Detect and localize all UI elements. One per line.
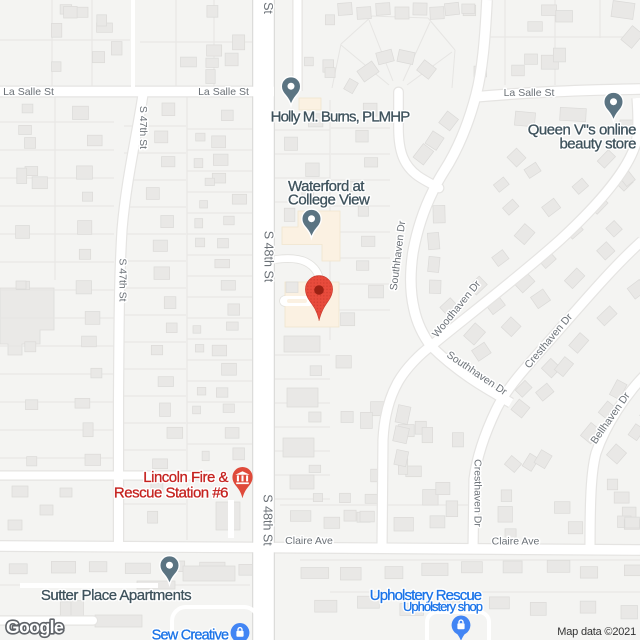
svg-text:Holly M. Burns, PLMHP: Holly M. Burns, PLMHP xyxy=(271,109,411,126)
svg-text:Claire Ave: Claire Ave xyxy=(492,536,540,548)
svg-text:Rescue Station #6: Rescue Station #6 xyxy=(114,485,228,502)
svg-text:Lincoln Fire &: Lincoln Fire & xyxy=(143,469,228,486)
svg-text:Google: Google xyxy=(6,617,64,637)
svg-text:La Salle St: La Salle St xyxy=(198,86,249,98)
svg-text:beauty store: beauty store xyxy=(559,136,636,153)
svg-text:S 47th St: S 47th St xyxy=(117,258,129,301)
svg-text:La Salle St: La Salle St xyxy=(3,86,54,98)
svg-text:Sew Creative: Sew Creative xyxy=(152,628,229,640)
svg-text:Map data ©2021: Map data ©2021 xyxy=(557,626,636,638)
svg-text:Sutter Place Apartments: Sutter Place Apartments xyxy=(41,587,191,604)
svg-text:Upholstery shop: Upholstery shop xyxy=(403,599,483,614)
svg-text:College View: College View xyxy=(288,192,370,209)
svg-text:Claire Ave: Claire Ave xyxy=(285,535,333,547)
svg-text:S 48th St: S 48th St xyxy=(262,231,276,283)
svg-text:S 48th St: S 48th St xyxy=(261,494,275,546)
svg-text:La Salle St: La Salle St xyxy=(504,87,555,99)
svg-text:St: St xyxy=(261,2,275,14)
svg-text:S 47th St: S 47th St xyxy=(137,106,149,149)
svg-text:Cresthaven Dr: Cresthaven Dr xyxy=(472,459,484,527)
